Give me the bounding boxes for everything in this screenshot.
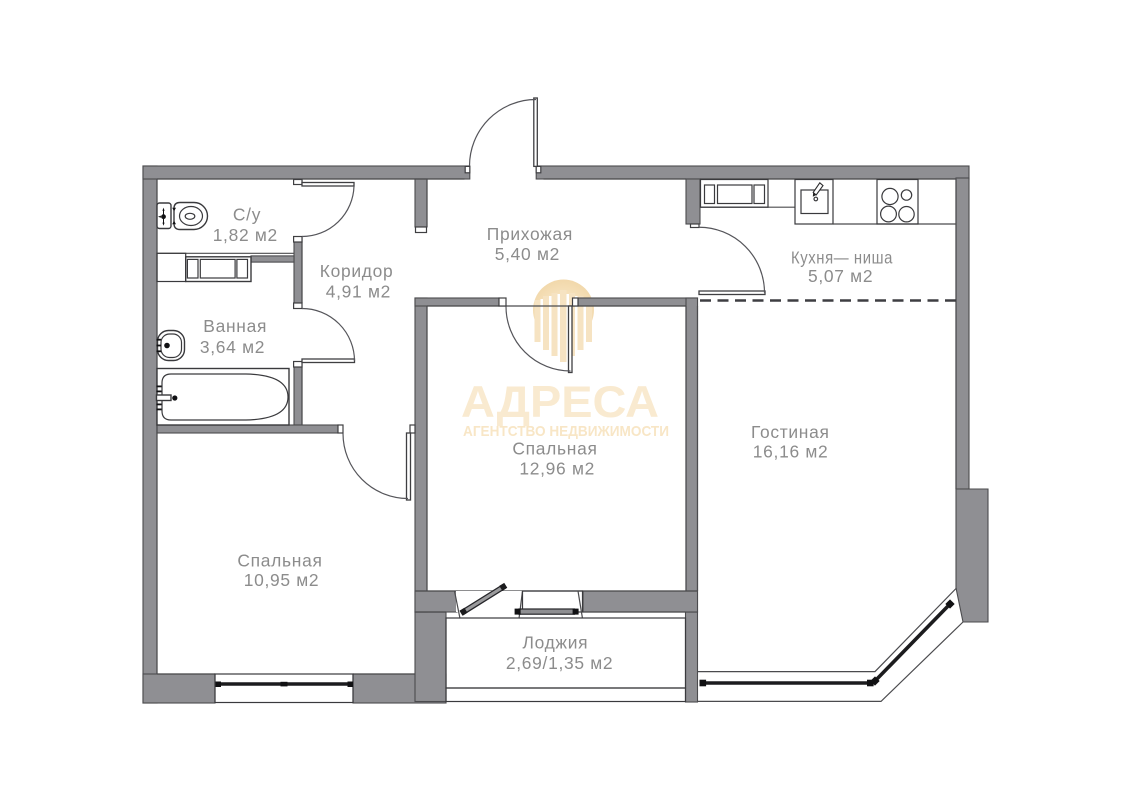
svg-text:10,95 м2: 10,95 м2 [244, 570, 320, 590]
svg-text:Ванная: Ванная [203, 316, 267, 336]
svg-text:АДРЕСА: АДРЕСА [461, 378, 659, 427]
svg-text:5,40 м2: 5,40 м2 [495, 244, 560, 264]
svg-text:12,96 м2: 12,96 м2 [519, 458, 595, 478]
svg-text:3,64 м2: 3,64 м2 [200, 337, 265, 357]
svg-text:2,69/1,35 м2: 2,69/1,35 м2 [506, 653, 613, 673]
svg-text:Прихожая: Прихожая [487, 224, 573, 244]
svg-text:Спальная: Спальная [512, 438, 597, 458]
svg-text:Кухня— ниша: Кухня— ниша [791, 248, 893, 268]
svg-text:Гостиная: Гостиная [751, 422, 830, 442]
svg-text:С/у: С/у [233, 204, 261, 224]
svg-text:Коридор: Коридор [320, 261, 394, 281]
svg-text:16,16 м2: 16,16 м2 [753, 442, 829, 462]
svg-text:4,91 м2: 4,91 м2 [326, 281, 391, 301]
svg-text:Спальная: Спальная [237, 551, 322, 571]
svg-text:1,82 м2: 1,82 м2 [213, 225, 278, 245]
svg-text:Лоджия: Лоджия [522, 633, 588, 653]
svg-text:5,07 м2: 5,07 м2 [808, 266, 873, 286]
